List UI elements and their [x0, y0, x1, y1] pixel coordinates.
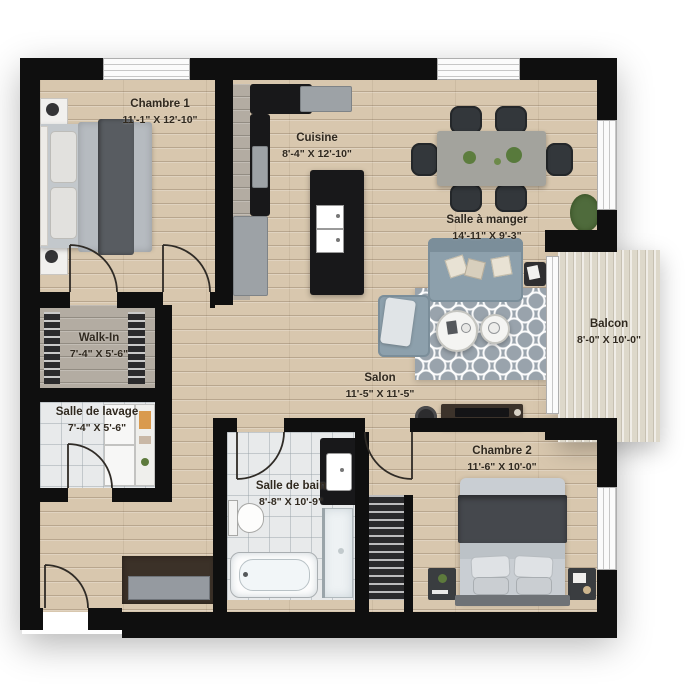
- dining-chair: [411, 143, 438, 176]
- wall: [40, 388, 155, 402]
- stove: [300, 86, 352, 112]
- room-name: Salle de lavage: [56, 404, 138, 421]
- room-dims: 11'-5" X 11'-5": [346, 387, 415, 402]
- dining-table: [437, 131, 546, 186]
- wall: [284, 418, 365, 432]
- room-dims: 11'-6" X 10'-0": [467, 460, 536, 475]
- bathtub-basin: [239, 559, 310, 591]
- wall: [112, 488, 172, 502]
- window: [597, 487, 617, 570]
- window: [437, 58, 520, 80]
- pillow: [470, 555, 510, 579]
- room-name: Cuisine: [282, 130, 352, 147]
- nightstand-decor: [583, 586, 591, 594]
- room-label-salle-de-lavage: Salle de lavage 7'-4" X 5'-6": [56, 404, 138, 436]
- pillow: [516, 577, 552, 595]
- room-label-salle-de-bain: Salle de bain 8'-8" X 10'-9": [256, 478, 326, 510]
- dining-chair: [450, 184, 482, 212]
- sink-divider: [316, 228, 344, 230]
- wall: [213, 418, 227, 612]
- table-decor: [461, 323, 471, 333]
- room-label-salon: Salon 11'-5" X 11'-5": [346, 370, 415, 402]
- room-label-balcon: Balcon 8'-0" X 10'-0": [577, 316, 641, 348]
- dining-chair: [495, 106, 527, 134]
- closet-rack: [44, 312, 60, 384]
- room-dims: 7'-4" X 5'-6": [70, 347, 128, 362]
- room-name: Chambre 1: [122, 96, 197, 113]
- magazine: [527, 265, 540, 280]
- throw-blanket: [380, 297, 416, 347]
- pillow: [50, 187, 77, 239]
- wall: [410, 418, 597, 432]
- room-label-cuisine: Cuisine 8'-4" X 12'-10": [282, 130, 352, 162]
- dining-chair: [546, 143, 573, 176]
- pillow: [473, 577, 509, 595]
- bed-blanket: [98, 119, 134, 255]
- wall: [122, 612, 617, 638]
- entry-mat: [128, 576, 210, 600]
- lamp-icon: [45, 250, 58, 263]
- room-dims: 8'-8" X 10'-9": [256, 495, 326, 510]
- dishwasher: [252, 146, 268, 188]
- room-dims: 14'-11" X 9'-3": [446, 229, 527, 244]
- room-dims: 8'-4" X 12'-10": [282, 147, 352, 162]
- sink-drain-icon: [336, 214, 340, 218]
- plant-icon: [494, 158, 501, 165]
- plant-icon: [463, 151, 476, 164]
- room-dims: 7'-4" X 5'-6": [56, 421, 138, 436]
- wall: [155, 305, 172, 402]
- table-decor: [446, 320, 458, 334]
- wall: [213, 418, 237, 432]
- room-dims: 8'-0" X 10'-0": [577, 333, 641, 348]
- wall: [88, 608, 122, 630]
- shower-drain-icon: [338, 548, 344, 554]
- room-dims: 11'-1" X 12'-10": [122, 113, 197, 128]
- floor-plan: Chambre 1 11'-1" X 12'-10" Cuisine 8'-4"…: [0, 0, 700, 700]
- sink-drain-icon: [336, 238, 340, 242]
- wall: [355, 432, 369, 612]
- tv: [455, 408, 509, 417]
- bed-blanket: [458, 495, 567, 543]
- shelf-item: [139, 436, 151, 444]
- dining-chair: [495, 184, 527, 212]
- wall: [20, 58, 40, 630]
- pillow: [513, 555, 553, 579]
- wall: [215, 80, 233, 305]
- room-label-salle-a-manger: Salle à manger 14'-11" X 9'-3": [446, 212, 527, 244]
- room-name: Salle à manger: [446, 212, 527, 229]
- shower: [322, 508, 353, 598]
- wall: [210, 292, 215, 308]
- corner-plant-icon: [570, 194, 600, 232]
- lamp-icon: [46, 103, 59, 116]
- wall: [20, 608, 43, 630]
- pillow: [490, 255, 512, 277]
- shelf-item: [139, 411, 151, 429]
- sink-drain-icon: [340, 468, 344, 472]
- nightstand-decor: [432, 590, 448, 594]
- plant-icon: [506, 147, 522, 163]
- closet-rack: [369, 495, 404, 600]
- pillow: [50, 131, 77, 183]
- room-label-chambre1: Chambre 1 11'-1" X 12'-10": [122, 96, 197, 128]
- tub-drain-icon: [243, 572, 248, 577]
- room-name: Balcon: [577, 316, 641, 333]
- sliding-door: [546, 256, 559, 414]
- plant-icon: [438, 574, 447, 583]
- bed-headboard: [40, 126, 48, 246]
- wall: [155, 402, 172, 502]
- table-decor: [488, 322, 500, 334]
- washer-dryer-divider: [104, 444, 135, 446]
- dining-chair: [450, 106, 482, 134]
- plant-icon: [141, 458, 149, 466]
- wall: [40, 488, 68, 502]
- room-name: Salon: [346, 370, 415, 387]
- bed-headboard: [455, 595, 570, 606]
- window: [597, 120, 617, 210]
- closet-rack: [128, 312, 145, 384]
- room-name: Chambre 2: [467, 443, 536, 460]
- window: [103, 58, 190, 80]
- wall: [545, 230, 617, 252]
- room-label-walk-in: Walk-In 7'-4" X 5'-6": [70, 330, 128, 362]
- wall: [40, 292, 70, 308]
- room-name: Walk-In: [70, 330, 128, 347]
- picture-frame: [573, 573, 586, 583]
- room-label-chambre2: Chambre 2 11'-6" X 10'-0": [467, 443, 536, 475]
- console-decor: [514, 409, 521, 416]
- wall: [404, 495, 413, 612]
- fridge: [233, 216, 268, 296]
- bathroom-sink: [326, 453, 352, 491]
- nightstand: [428, 568, 456, 600]
- shower-glass-door: [322, 508, 325, 598]
- room-name: Salle de bain: [256, 478, 326, 495]
